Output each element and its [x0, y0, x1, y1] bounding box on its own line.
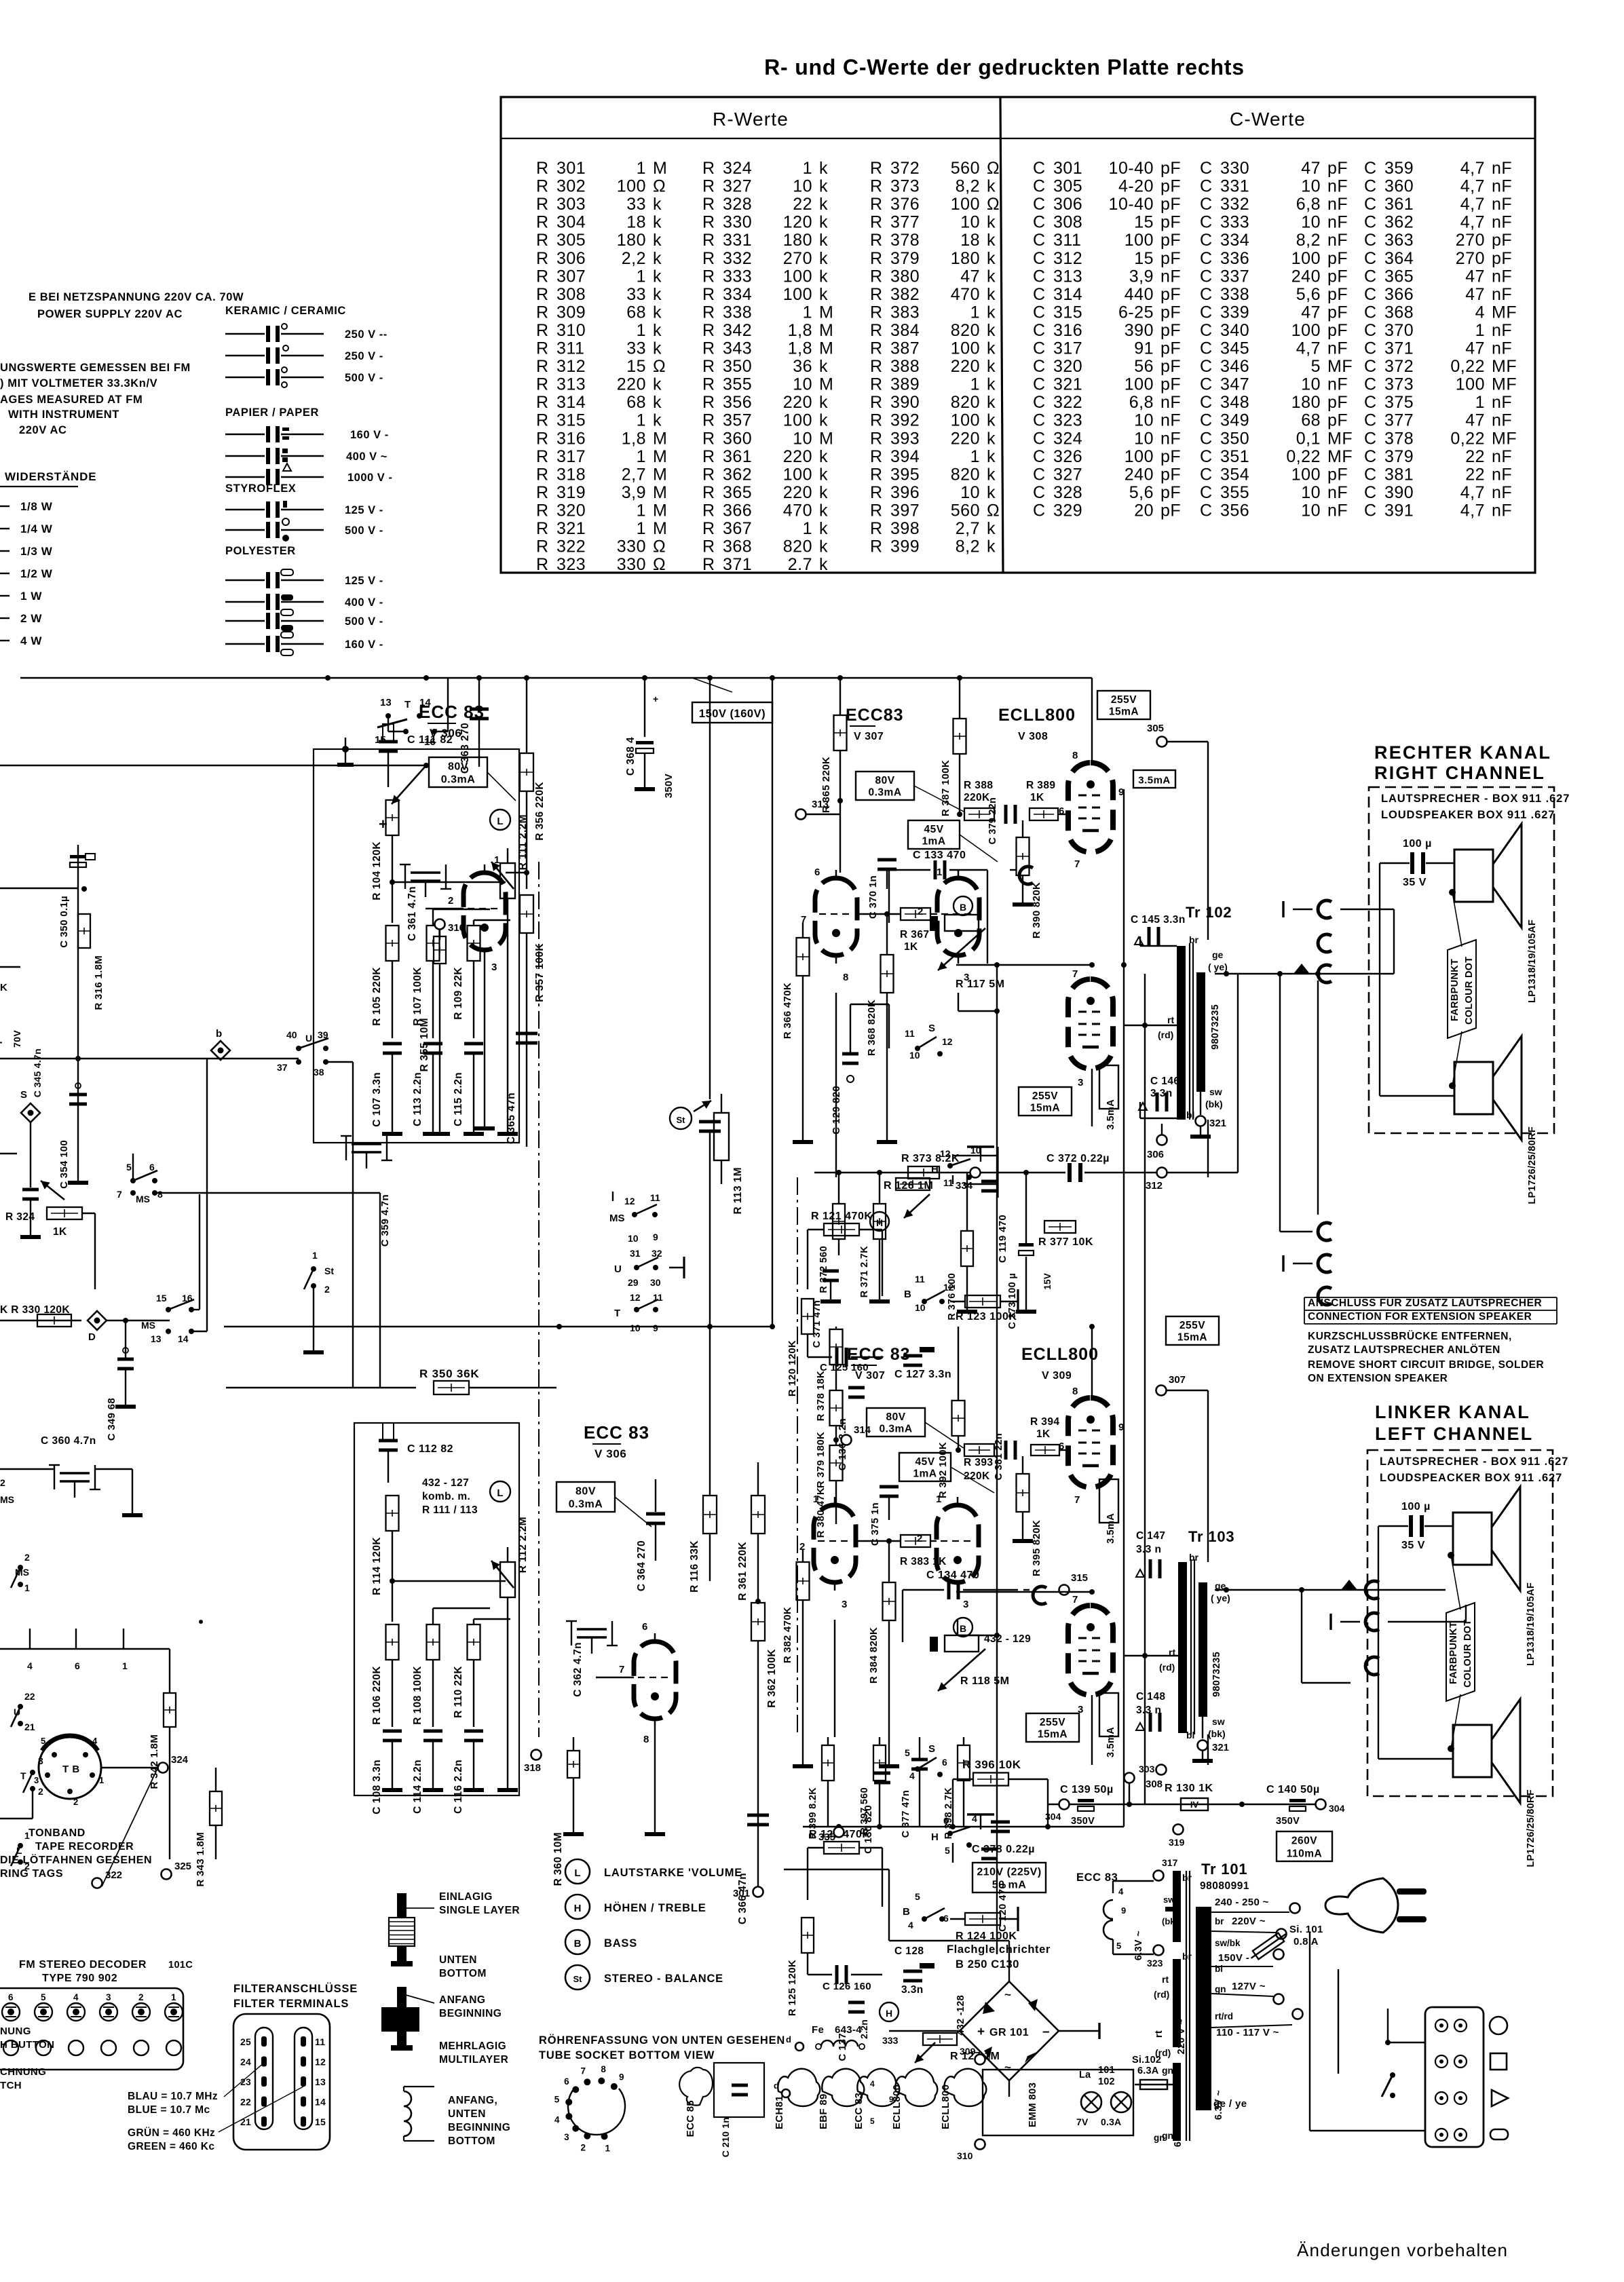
svg-text:0.8 A: 0.8 A [1293, 1936, 1319, 1947]
svg-text:R: R [870, 429, 882, 448]
svg-text:pF: pF [1327, 303, 1348, 322]
svg-text:33: 33 [626, 195, 646, 214]
svg-text:k: k [987, 429, 996, 448]
svg-text:R: R [702, 195, 715, 214]
svg-text:ECC 83: ECC 83 [1076, 1871, 1118, 1884]
svg-text:1000 V -: 1000 V - [347, 472, 392, 484]
svg-text:R: R [536, 357, 548, 376]
svg-text:R: R [702, 555, 715, 574]
svg-text:V 306: V 306 [430, 727, 461, 740]
svg-text:V 307: V 307 [854, 731, 884, 742]
svg-text:ANSCHLUSS FÜR ZUSATZ LAUTSPREC: ANSCHLUSS FÜR ZUSATZ LAUTSPRECHER [1308, 1297, 1542, 1309]
svg-text:k: k [653, 285, 662, 304]
svg-text:1K: 1K [1030, 792, 1044, 803]
svg-text:ANFANG,: ANFANG, [448, 2095, 497, 2106]
svg-text:303: 303 [1139, 1764, 1155, 1774]
svg-text:R 126 1M: R 126 1M [884, 1180, 933, 1192]
svg-text:6: 6 [642, 1621, 647, 1633]
svg-text:210V (225V): 210V (225V) [977, 1867, 1041, 1878]
svg-text:370: 370 [1384, 321, 1414, 340]
svg-text:nF: nF [1492, 447, 1512, 466]
svg-text:220V ~: 220V ~ [1232, 1916, 1266, 1927]
svg-text:k: k [987, 447, 996, 466]
svg-text:ECLL800: ECLL800 [1021, 1345, 1099, 1364]
svg-text:br: br [1215, 1916, 1224, 1926]
svg-text:9: 9 [889, 2095, 894, 2104]
svg-text:nF: nF [1492, 213, 1512, 232]
svg-text:375: 375 [1384, 393, 1414, 412]
svg-text:sw/bk: sw/bk [1215, 1938, 1241, 1948]
svg-text:k: k [653, 249, 662, 268]
svg-text:354: 354 [1220, 465, 1249, 484]
svg-text:R: R [536, 267, 548, 286]
svg-text:180: 180 [783, 231, 812, 250]
svg-text:383: 383 [890, 303, 920, 322]
svg-text:C: C [1364, 465, 1376, 484]
svg-text:MF: MF [1327, 429, 1353, 448]
svg-text:362: 362 [1384, 213, 1414, 232]
svg-text:EMM 803: EMM 803 [1027, 2083, 1038, 2127]
svg-text:C: C [1033, 465, 1045, 484]
svg-text:C 372 0.22µ: C 372 0.22µ [1046, 1153, 1110, 1164]
svg-text:100: 100 [951, 339, 980, 358]
svg-text:3: 3 [964, 972, 969, 983]
svg-text:322: 322 [1053, 393, 1082, 412]
svg-text:334: 334 [956, 1180, 973, 1192]
svg-text:349: 349 [1220, 411, 1249, 430]
svg-text:MF: MF [1327, 447, 1353, 466]
svg-text:LP1318/19/105AF: LP1318/19/105AF [1526, 1582, 1536, 1666]
svg-text:C 133 470: C 133 470 [913, 850, 966, 861]
svg-text:C: C [1364, 411, 1376, 430]
svg-text:101C: 101C [168, 1960, 193, 1971]
svg-text:1: 1 [494, 854, 499, 866]
svg-text:k: k [819, 519, 828, 538]
svg-text:1mA: 1mA [913, 1468, 937, 1480]
svg-text:306: 306 [1147, 1149, 1164, 1160]
svg-text:C 368 4: C 368 4 [625, 737, 637, 776]
svg-text:33: 33 [626, 285, 646, 304]
svg-text:24: 24 [240, 2057, 251, 2068]
svg-text:C 137: C 137 [837, 2033, 848, 2061]
svg-text:0.3mA: 0.3mA [879, 1424, 912, 1435]
svg-text:(rd): (rd) [1159, 1662, 1175, 1673]
svg-text:4: 4 [73, 1992, 79, 2002]
svg-text:MS: MS [141, 1320, 155, 1331]
svg-text:R: R [870, 195, 882, 214]
svg-text:11: 11 [905, 1028, 915, 1039]
svg-text:2: 2 [580, 2143, 586, 2153]
svg-text:240: 240 [1291, 267, 1321, 286]
svg-text:220V AC: 220V AC [19, 424, 67, 436]
svg-text:k: k [653, 393, 662, 412]
svg-text:10: 10 [793, 429, 812, 448]
svg-text:45V: 45V [924, 824, 943, 835]
svg-text:BLUE = 10.7 Mc: BLUE = 10.7 Mc [128, 2104, 210, 2116]
svg-text:R: R [702, 285, 715, 304]
svg-text:ZUSATZ LAUTSPRECHER ANLÖTEN: ZUSATZ LAUTSPRECHER ANLÖTEN [1308, 1344, 1500, 1356]
svg-text:R 130 1K: R 130 1K [1165, 1783, 1213, 1794]
svg-text:319: 319 [556, 483, 586, 502]
svg-text:k: k [987, 465, 996, 484]
svg-text:10: 10 [909, 1050, 920, 1061]
svg-text:R: R [536, 249, 548, 268]
svg-text:k: k [987, 303, 996, 322]
svg-text:C: C [1200, 303, 1212, 322]
svg-text:80V: 80V [875, 775, 894, 786]
svg-text:H: H [574, 1903, 582, 1914]
svg-text:B: B [904, 1289, 911, 1300]
svg-text:3,9: 3,9 [622, 483, 646, 502]
svg-text:355: 355 [723, 375, 752, 394]
svg-text:2: 2 [448, 895, 453, 907]
svg-text:C 114 2.2n: C 114 2.2n [412, 1760, 423, 1814]
svg-text:382: 382 [890, 285, 920, 304]
svg-text:BLAU = 10.7 MHz: BLAU = 10.7 MHz [128, 2091, 218, 2102]
svg-text:332: 332 [723, 249, 752, 268]
svg-text:100: 100 [783, 411, 812, 430]
svg-text:Ω: Ω [987, 159, 1000, 178]
svg-text:270: 270 [1456, 231, 1485, 250]
svg-text:5: 5 [945, 1845, 950, 1856]
svg-text:EBF 89: EBF 89 [818, 2093, 829, 2129]
svg-text:C 360 4.7n: C 360 4.7n [41, 1435, 96, 1447]
svg-text:d: d [786, 2034, 791, 2045]
svg-text:C 361 4.7n: C 361 4.7n [407, 886, 418, 941]
svg-text:3.3 n: 3.3 n [1136, 1544, 1161, 1555]
svg-text:nF: nF [1492, 501, 1512, 520]
svg-text:C 148: C 148 [1136, 1691, 1165, 1703]
svg-text:388: 388 [890, 357, 920, 376]
svg-text:47: 47 [1465, 267, 1485, 286]
svg-text:V 308: V 308 [1018, 731, 1048, 742]
svg-text:2,2: 2,2 [622, 249, 646, 268]
svg-text:318: 318 [524, 1762, 541, 1774]
svg-text:BOTTOM: BOTTOM [439, 1968, 487, 1979]
svg-text:MF: MF [1492, 375, 1517, 394]
svg-text:6: 6 [8, 1992, 14, 2002]
svg-text:250 V --: 250 V -- [345, 328, 388, 341]
svg-text:500 V -: 500 V - [345, 525, 383, 537]
svg-text:324: 324 [1053, 429, 1082, 448]
svg-text:R 377 10K: R 377 10K [1038, 1236, 1093, 1248]
svg-text:100: 100 [1291, 321, 1321, 340]
svg-text:1,8: 1,8 [788, 321, 812, 340]
svg-text:373: 373 [1384, 375, 1414, 394]
svg-text:k: k [819, 447, 828, 466]
svg-text:4,7: 4,7 [1460, 177, 1485, 196]
svg-text:nF: nF [1492, 195, 1512, 214]
svg-text:R: R [536, 411, 548, 430]
svg-text:15mA: 15mA [1030, 1103, 1060, 1114]
svg-text:2 W: 2 W [20, 612, 42, 625]
svg-text:k: k [987, 231, 996, 250]
svg-text:IV: IV [1190, 1800, 1199, 1810]
svg-text:393: 393 [890, 429, 920, 448]
svg-text:22: 22 [1465, 465, 1485, 484]
svg-text:47: 47 [1465, 411, 1485, 430]
svg-text:ECC83: ECC83 [846, 706, 904, 725]
svg-text:ECC 83: ECC 83 [853, 2093, 865, 2129]
svg-text:Si. 101: Si. 101 [1289, 1924, 1323, 1935]
svg-text:304: 304 [1329, 1803, 1345, 1814]
svg-text:350: 350 [723, 357, 752, 376]
svg-text:V 307: V 307 [855, 1370, 885, 1382]
svg-text:5: 5 [41, 1992, 46, 2002]
svg-text:C: C [1033, 303, 1045, 322]
svg-text:308: 308 [1146, 1779, 1163, 1790]
svg-text:432 - 127: 432 - 127 [422, 1477, 469, 1489]
svg-text:180: 180 [617, 231, 646, 250]
svg-text:R 104 120K: R 104 120K [371, 841, 383, 900]
svg-text:399: 399 [890, 537, 920, 556]
svg-text:R: R [536, 231, 548, 250]
svg-text:18: 18 [960, 231, 980, 250]
svg-text:nF: nF [1327, 375, 1348, 394]
svg-text:HÖHEN / TREBLE: HÖHEN / TREBLE [604, 1901, 706, 1914]
svg-text:R 379 180K: R 379 180K [815, 1432, 827, 1488]
svg-text:303: 303 [556, 195, 586, 214]
svg-text:323: 323 [1053, 411, 1082, 430]
svg-text:) MIT VOLTMETER 33.3Kn/V: ) MIT VOLTMETER 33.3Kn/V [0, 377, 157, 389]
svg-text:RECHTER KANAL: RECHTER KANAL [1374, 742, 1551, 763]
svg-text:7: 7 [619, 1664, 624, 1675]
svg-text:k: k [987, 249, 996, 268]
svg-text:10: 10 [628, 1233, 639, 1244]
svg-text:4,7: 4,7 [1296, 339, 1321, 358]
svg-text:389: 389 [890, 375, 920, 394]
svg-text:nF: nF [1327, 339, 1348, 358]
svg-text:1/3 W: 1/3 W [20, 545, 53, 558]
svg-text:307: 307 [556, 267, 586, 286]
svg-text:STYROFLEX: STYROFLEX [225, 482, 296, 495]
svg-text:470: 470 [783, 501, 812, 520]
svg-text:M: M [819, 429, 833, 448]
svg-text:500 V -: 500 V - [345, 372, 383, 384]
svg-text:12: 12 [942, 1036, 953, 1047]
svg-text:k: k [987, 375, 996, 394]
svg-text:255V: 255V [1032, 1090, 1058, 1102]
svg-text:8,2: 8,2 [1296, 231, 1321, 250]
svg-text:5: 5 [1116, 1941, 1121, 1951]
svg-text:305: 305 [556, 231, 586, 250]
svg-text:321: 321 [1209, 1118, 1226, 1129]
svg-text:nF: nF [1492, 267, 1512, 286]
svg-text:Änderungen vorbehalten: Änderungen vorbehalten [1297, 2240, 1508, 2260]
svg-text:LP1318/19/105AF: LP1318/19/105AF [1527, 919, 1538, 1003]
svg-text:R: R [870, 339, 882, 358]
svg-text:381: 381 [1384, 465, 1414, 484]
svg-text:1,8: 1,8 [788, 339, 812, 358]
svg-text:R: R [702, 321, 715, 340]
svg-text:334: 334 [723, 285, 752, 304]
svg-text:C 373 100 µ: C 373 100 µ [1007, 1273, 1018, 1329]
svg-text:1: 1 [171, 1992, 176, 2002]
svg-text:C: C [1200, 231, 1212, 250]
svg-text:22: 22 [240, 2097, 251, 2108]
svg-text:255V: 255V [1040, 1717, 1065, 1728]
svg-text:R-Werte: R-Werte [713, 109, 789, 130]
svg-text:1: 1 [1475, 393, 1485, 412]
svg-text:37: 37 [277, 1062, 288, 1073]
svg-text:R: R [702, 249, 715, 268]
svg-text:100 µ: 100 µ [1401, 1501, 1431, 1513]
svg-text:11: 11 [915, 1274, 925, 1285]
svg-text:C 378 0.22µ: C 378 0.22µ [972, 1844, 1035, 1855]
svg-text:47: 47 [960, 267, 980, 286]
svg-text:R: R [536, 285, 548, 304]
svg-text:pF: pF [1160, 321, 1181, 340]
svg-text:C 371 47n: C 371 47n [812, 1300, 823, 1348]
svg-text:347: 347 [1220, 375, 1249, 394]
svg-text:12: 12 [315, 2057, 326, 2068]
svg-text:8: 8 [601, 2064, 606, 2074]
svg-text:342: 342 [723, 321, 752, 340]
svg-text:C: C [1200, 339, 1212, 358]
svg-text:7: 7 [1074, 1494, 1080, 1506]
svg-text:1: 1 [24, 1582, 30, 1593]
svg-text:R: R [536, 429, 548, 448]
svg-text:SINGLE LAYER: SINGLE LAYER [439, 1905, 520, 1916]
svg-text:255V: 255V [1111, 694, 1137, 706]
svg-text:R 316 1.8M: R 316 1.8M [93, 955, 105, 1010]
svg-text:C 127 3.3n: C 127 3.3n [894, 1369, 951, 1380]
svg-text:pF: pF [1327, 159, 1348, 178]
svg-text:R 384 820K: R 384 820K [868, 1627, 880, 1684]
svg-text:R: R [536, 519, 548, 538]
svg-text:368: 368 [723, 537, 752, 556]
svg-text:k: k [653, 321, 662, 340]
svg-text:150V (160V): 150V (160V) [699, 708, 766, 720]
svg-text:EINLAGIG: EINLAGIG [439, 1891, 493, 1903]
svg-text:R: R [870, 159, 882, 178]
svg-text:C: C [1033, 429, 1045, 448]
svg-text:M: M [819, 375, 833, 394]
svg-text:364: 364 [1384, 249, 1414, 268]
svg-text:101: 101 [1098, 2065, 1115, 2076]
svg-text:332: 332 [1220, 195, 1249, 214]
svg-text:sw: sw [1212, 1716, 1225, 1727]
svg-text:3: 3 [1078, 1077, 1083, 1088]
svg-text:C: C [1033, 411, 1045, 430]
svg-text:C 128: C 128 [894, 1945, 924, 1957]
svg-text:398: 398 [890, 519, 920, 538]
svg-text:317: 317 [1162, 1857, 1178, 1868]
svg-text:R 367: R 367 [900, 929, 929, 940]
svg-text:nF: nF [1327, 483, 1348, 502]
svg-text:C 375 1n: C 375 1n [869, 1502, 881, 1546]
svg-text:33: 33 [626, 339, 646, 358]
svg-text:MF: MF [1492, 429, 1517, 448]
svg-text:6: 6 [564, 2076, 569, 2087]
svg-text:323: 323 [1147, 1958, 1163, 1969]
svg-text:POWER SUPPLY 220V AC: POWER SUPPLY 220V AC [37, 308, 183, 320]
svg-text:nF: nF [1492, 339, 1512, 358]
svg-text:10: 10 [1301, 501, 1321, 520]
svg-text:378: 378 [890, 231, 920, 250]
svg-text:R 120 120K: R 120 120K [787, 1340, 798, 1396]
svg-text:110 - 117 V ~: 110 - 117 V ~ [1216, 2027, 1279, 2038]
svg-text:91: 91 [1134, 339, 1154, 358]
svg-text:k: k [819, 501, 828, 520]
svg-text:ge: ge [1212, 949, 1224, 960]
svg-text:C 126 160: C 126 160 [823, 1981, 871, 1992]
svg-text:pF: pF [1160, 357, 1181, 376]
svg-text:8: 8 [843, 972, 848, 983]
svg-text:k: k [819, 249, 828, 268]
svg-text:345: 345 [1220, 339, 1249, 358]
svg-text:k: k [653, 411, 662, 430]
svg-text:C: C [1033, 447, 1045, 466]
svg-text:22: 22 [793, 195, 812, 214]
svg-text:10-40: 10-40 [1109, 195, 1154, 214]
svg-text:2: 2 [73, 1797, 78, 1807]
svg-text:3: 3 [842, 1599, 847, 1610]
svg-text:333: 333 [723, 267, 752, 286]
svg-text:0,22: 0,22 [1450, 429, 1485, 448]
svg-text:47: 47 [1465, 285, 1485, 304]
svg-text:47: 47 [1301, 159, 1321, 178]
svg-text:k: k [987, 285, 996, 304]
svg-text:4,7: 4,7 [1460, 159, 1485, 178]
svg-text:k: k [653, 267, 662, 286]
svg-text:320: 320 [556, 501, 586, 520]
svg-text:LOUDSPEAKER BOX 911 .627: LOUDSPEAKER BOX 911 .627 [1381, 809, 1555, 821]
svg-text:nF: nF [1492, 465, 1512, 484]
svg-text:322: 322 [556, 537, 586, 556]
svg-text:(rd): (rd) [1158, 1029, 1173, 1040]
svg-text:k: k [653, 231, 662, 250]
svg-text:k: k [653, 375, 662, 394]
svg-text:R 383 1K: R 383 1K [900, 1556, 947, 1567]
svg-text:R: R [870, 447, 882, 466]
svg-text:R 394: R 394 [1030, 1416, 1059, 1428]
svg-text:Tr 101: Tr 101 [1201, 1861, 1247, 1878]
svg-text:R: R [870, 177, 882, 196]
svg-text:10: 10 [793, 375, 812, 394]
svg-text:391: 391 [1384, 501, 1414, 520]
svg-text:363: 363 [1384, 231, 1414, 250]
svg-text:350V: 350V [663, 774, 675, 798]
svg-text:304: 304 [1045, 1811, 1061, 1822]
svg-text:St: St [573, 1974, 583, 1984]
svg-text:4,7: 4,7 [1460, 195, 1485, 214]
svg-text:346: 346 [1220, 357, 1249, 376]
svg-text:R: R [536, 321, 548, 340]
svg-text:1/2 W: 1/2 W [20, 567, 53, 580]
svg-text:R 342 1.8M: R 342 1.8M [149, 1734, 160, 1789]
svg-text:R 395 820K: R 395 820K [1031, 1520, 1042, 1576]
svg-text:4 W: 4 W [20, 634, 42, 647]
svg-text:R: R [870, 303, 882, 322]
svg-text:100: 100 [783, 465, 812, 484]
svg-text:5: 5 [554, 2094, 560, 2104]
svg-text:15V: 15V [1042, 1273, 1053, 1290]
svg-text:R: R [702, 393, 715, 412]
svg-text:356: 356 [1220, 501, 1249, 520]
svg-text:ANFANG: ANFANG [439, 1994, 485, 2006]
svg-text:367: 367 [723, 519, 752, 538]
svg-text:k: k [987, 519, 996, 538]
svg-text:C: C [1364, 195, 1376, 214]
svg-text:1/8 W: 1/8 W [20, 500, 53, 513]
svg-text:nF: nF [1492, 393, 1512, 412]
svg-text:360: 360 [1384, 177, 1414, 196]
svg-text:GRÜN = 460 KHz: GRÜN = 460 KHz [128, 2127, 215, 2139]
svg-text:80V: 80V [575, 1486, 596, 1498]
svg-text:315: 315 [1071, 1572, 1088, 1584]
svg-text:C 147: C 147 [1136, 1530, 1165, 1542]
